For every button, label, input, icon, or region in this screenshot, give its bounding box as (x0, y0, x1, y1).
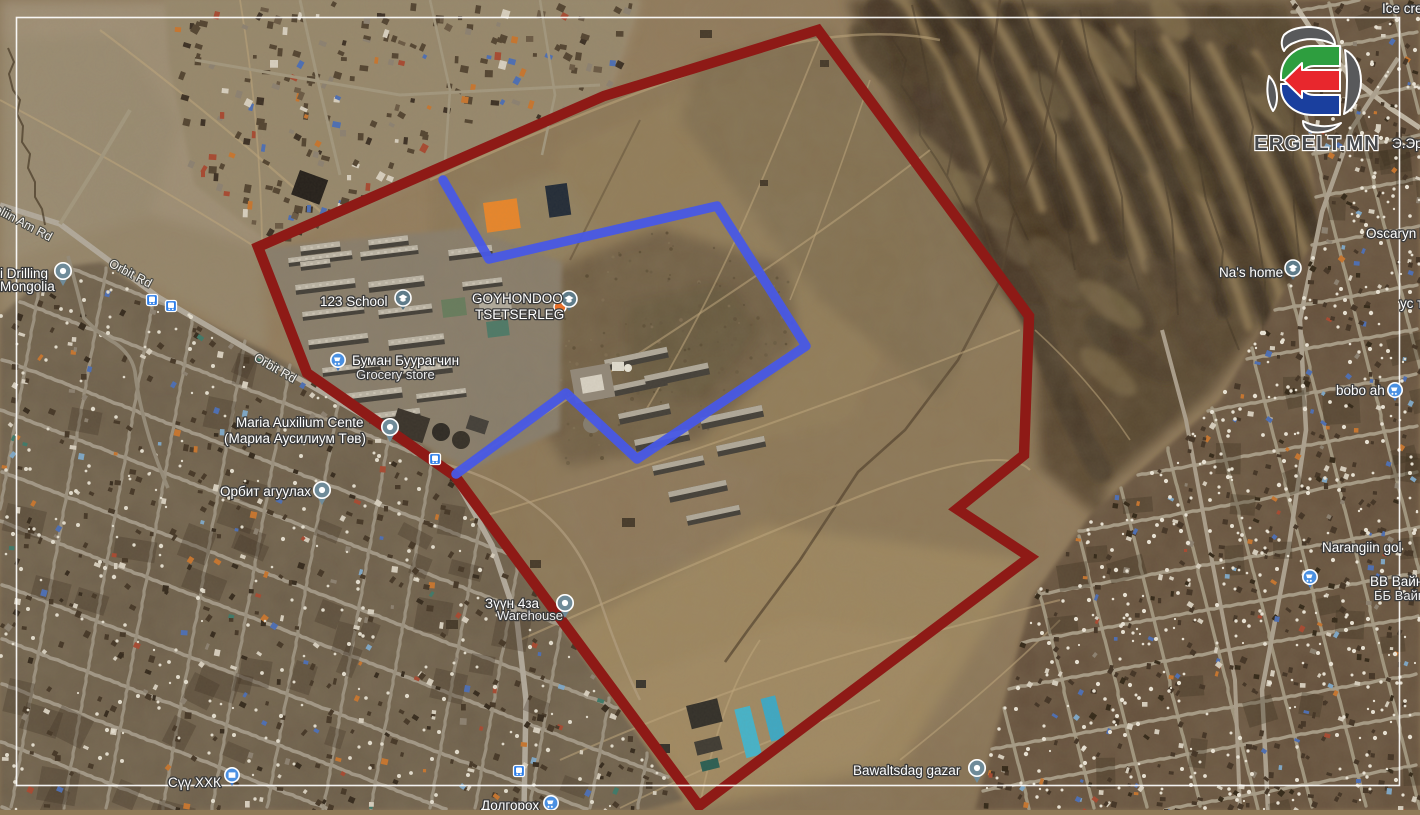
svg-text:bobo ah: bobo ah (1336, 383, 1385, 398)
svg-text:Bawaltsdag gazar: Bawaltsdag gazar (853, 763, 961, 778)
svg-text:Grocery store: Grocery store (356, 367, 435, 382)
svg-text:Na's home: Na's home (1219, 265, 1283, 280)
svg-text:BB Вайн: BB Вайн (1370, 574, 1420, 589)
svg-text:Mongolia: Mongolia (0, 279, 55, 294)
svg-text:Орбит агуулах: Орбит агуулах (220, 484, 311, 499)
svg-text:Warehouse: Warehouse (497, 608, 563, 623)
svg-text:Ice cream: Ice cream (1382, 1, 1420, 16)
svg-text:Буман Буурагчин: Буман Буурагчин (352, 353, 459, 368)
svg-text:Долгорох: Долгорох (481, 798, 539, 810)
svg-text:Maria Auxilium Cente: Maria Auxilium Cente (236, 415, 364, 430)
svg-text:ус ту: ус ту (1400, 296, 1420, 311)
svg-text:Oscaryn h: Oscaryn h (1366, 226, 1420, 241)
svg-text:ERGELT.MN: ERGELT.MN (1254, 132, 1380, 155)
svg-text:Сүү ХХК: Сүү ХХК (168, 775, 221, 790)
svg-text:(Мариа Аусилиум Төв): (Мариа Аусилиум Төв) (224, 431, 366, 446)
svg-text:TSETSERLEG: TSETSERLEG (475, 307, 564, 322)
svg-text:Narangiin gol: Narangiin gol (1322, 540, 1402, 555)
svg-text:Э.Эргэлт: Э.Эргэлт (1392, 136, 1420, 151)
svg-text:ББ Вайн: ББ Вайн (1374, 588, 1420, 603)
svg-text:GOYHONDOO: GOYHONDOO (472, 291, 563, 306)
svg-text:123 School: 123 School (320, 294, 388, 309)
